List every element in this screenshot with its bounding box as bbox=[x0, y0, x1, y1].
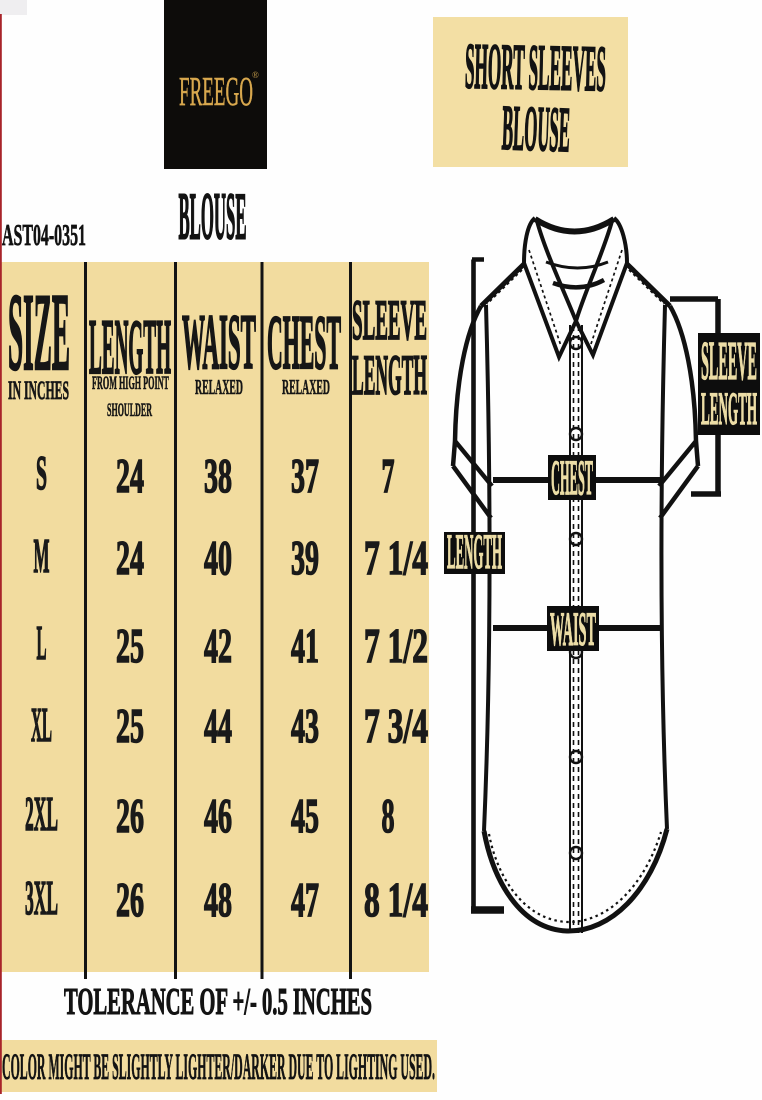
svg-text:SIZE: SIZE bbox=[8, 271, 70, 393]
svg-text:42: 42 bbox=[204, 618, 232, 673]
svg-text:LENGTH: LENGTH bbox=[701, 383, 757, 435]
svg-text:41: 41 bbox=[291, 618, 319, 673]
svg-text:RELAXED: RELAXED bbox=[282, 375, 330, 399]
svg-text:40: 40 bbox=[204, 530, 232, 585]
svg-text:25: 25 bbox=[116, 618, 144, 673]
svg-text:M: M bbox=[34, 528, 50, 583]
svg-text:CHEST: CHEST bbox=[267, 299, 341, 385]
svg-text:24: 24 bbox=[116, 530, 144, 585]
svg-text:BLOUSE: BLOUSE bbox=[501, 92, 571, 165]
svg-text:S: S bbox=[36, 445, 47, 500]
svg-text:SLEEVE: SLEEVE bbox=[352, 289, 427, 352]
svg-text:48: 48 bbox=[204, 872, 232, 927]
svg-text:37: 37 bbox=[291, 448, 319, 503]
svg-text:24: 24 bbox=[116, 448, 144, 503]
svg-text:43: 43 bbox=[291, 698, 319, 753]
svg-text:SHOULDER: SHOULDER bbox=[107, 400, 152, 421]
svg-text:25: 25 bbox=[116, 698, 144, 753]
svg-text:TOLERANCE OF +/- 0.5 INCHES: TOLERANCE OF +/- 0.5 INCHES bbox=[64, 981, 372, 1023]
svg-text:26: 26 bbox=[116, 788, 144, 843]
svg-text:FREEGO: FREEGO bbox=[179, 68, 253, 114]
svg-text:LENGTH: LENGTH bbox=[352, 344, 427, 407]
svg-text:8: 8 bbox=[382, 788, 395, 843]
svg-text:45: 45 bbox=[291, 788, 319, 843]
svg-text:WAIST: WAIST bbox=[182, 298, 256, 385]
svg-text:WAIST: WAIST bbox=[550, 603, 596, 656]
svg-text:7: 7 bbox=[382, 448, 395, 503]
svg-text:AST04-0351: AST04-0351 bbox=[2, 217, 86, 252]
svg-text:26: 26 bbox=[116, 872, 144, 927]
svg-text:2XL: 2XL bbox=[25, 786, 58, 841]
svg-text:BLOUSE: BLOUSE bbox=[179, 181, 247, 254]
svg-text:FROM HIGH POINT: FROM HIGH POINT bbox=[92, 373, 169, 394]
svg-text:CHEST: CHEST bbox=[551, 449, 593, 505]
svg-text:7 3/4: 7 3/4 bbox=[364, 698, 428, 753]
svg-text:SLEEVE: SLEEVE bbox=[701, 330, 757, 391]
svg-text:L: L bbox=[37, 615, 47, 670]
svg-text:7 1/4: 7 1/4 bbox=[364, 530, 428, 585]
svg-text:3XL: 3XL bbox=[25, 870, 58, 925]
svg-text:46: 46 bbox=[204, 788, 232, 843]
svg-text:COLOR MIGHT BE SLIGHTLY LIGHTE: COLOR MIGHT BE SLIGHTLY LIGHTER/DARKER D… bbox=[2, 1046, 435, 1087]
svg-text:47: 47 bbox=[291, 872, 319, 927]
svg-text:38: 38 bbox=[204, 448, 232, 503]
svg-text:44: 44 bbox=[204, 698, 232, 753]
svg-text:39: 39 bbox=[291, 530, 319, 585]
svg-text:7 1/2: 7 1/2 bbox=[364, 618, 428, 673]
svg-text:8 1/4: 8 1/4 bbox=[364, 872, 428, 927]
svg-text:XL: XL bbox=[31, 697, 52, 752]
svg-text:®: ® bbox=[252, 70, 259, 80]
svg-text:RELAXED: RELAXED bbox=[195, 375, 243, 399]
svg-text:LENGTH: LENGTH bbox=[447, 523, 502, 579]
svg-text:IN INCHES: IN INCHES bbox=[8, 376, 69, 405]
